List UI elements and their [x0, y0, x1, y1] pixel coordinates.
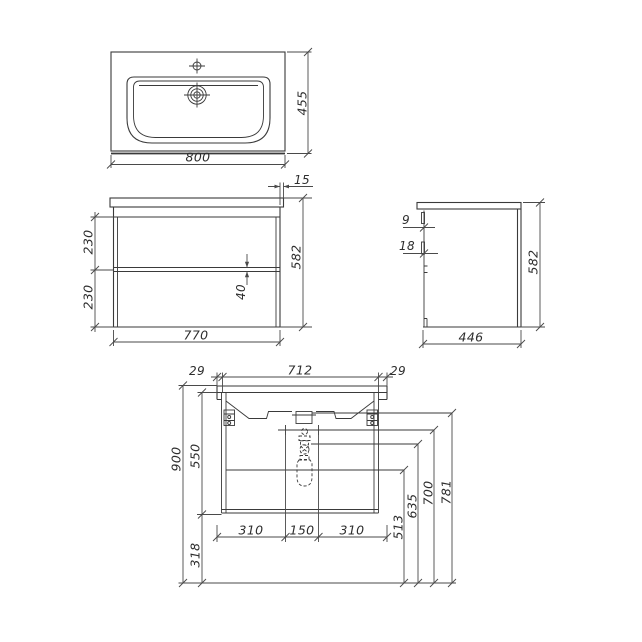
siphon-trap [297, 429, 312, 487]
dim-front-overhang: 15 [294, 173, 310, 187]
top-view [111, 52, 285, 154]
dim-side-reveal: 9 [402, 213, 410, 227]
dim-side-depth: 446 [458, 330, 483, 345]
dim-install-overall-height: 900 [169, 446, 184, 471]
drain-outlet-box [296, 412, 312, 424]
dim-install-right-margin: 29 [390, 364, 406, 378]
technical-drawing: 800 455 15 230 230 40 582 770 9 18 582 4… [0, 0, 642, 642]
drawing-linework [0, 0, 642, 642]
mounting-bracket-right [367, 410, 378, 426]
dim-front-upper-drawer: 230 [81, 229, 96, 254]
dim-side-height: 582 [526, 249, 541, 274]
dim-install-level-513: 513 [391, 514, 406, 539]
cabinet-sides [114, 207, 281, 327]
dim-install-mounting-span: 712 [287, 363, 312, 378]
dim-side-front-thickness: 18 [399, 239, 415, 253]
dim-top-width: 800 [185, 150, 210, 165]
side-countertop [417, 203, 521, 210]
drawer-gap-lines [114, 268, 281, 272]
basin-outline [127, 77, 270, 143]
front-view [110, 198, 284, 327]
dim-install-level-781: 781 [439, 479, 454, 504]
dim-install-bottom-center: 150 [289, 523, 314, 538]
dim-install-left-margin: 29 [189, 364, 205, 378]
carcass-sides [222, 393, 379, 514]
back-panel [518, 209, 522, 327]
dim-front-drawer-gap: 40 [234, 284, 248, 300]
basin-underside-profile [226, 401, 374, 424]
basin-rim-lines [217, 386, 387, 393]
drawer-front-profile [422, 211, 428, 328]
faucet-hole-icon [189, 59, 205, 74]
drain-icon [184, 83, 210, 108]
dim-front-width: 770 [183, 328, 208, 343]
dim-install-level-635: 635 [405, 493, 420, 518]
dim-install-level-700: 700 [421, 480, 436, 505]
dim-front-height: 582 [289, 244, 304, 269]
dim-install-floor-clearance: 318 [188, 542, 203, 567]
dim-install-carcass-height: 550 [188, 443, 203, 468]
dim-install-bottom-right: 310 [339, 523, 364, 538]
dim-install-bottom-left: 310 [238, 523, 263, 538]
front-countertop [110, 198, 284, 207]
dim-top-depth: 455 [295, 90, 310, 115]
cabinet-sides-inner [118, 217, 277, 327]
carcass-bottom [222, 510, 379, 514]
side-view [417, 203, 521, 328]
dim-front-lower-drawer: 230 [81, 284, 96, 309]
installation-view-dimensions [179, 373, 457, 588]
